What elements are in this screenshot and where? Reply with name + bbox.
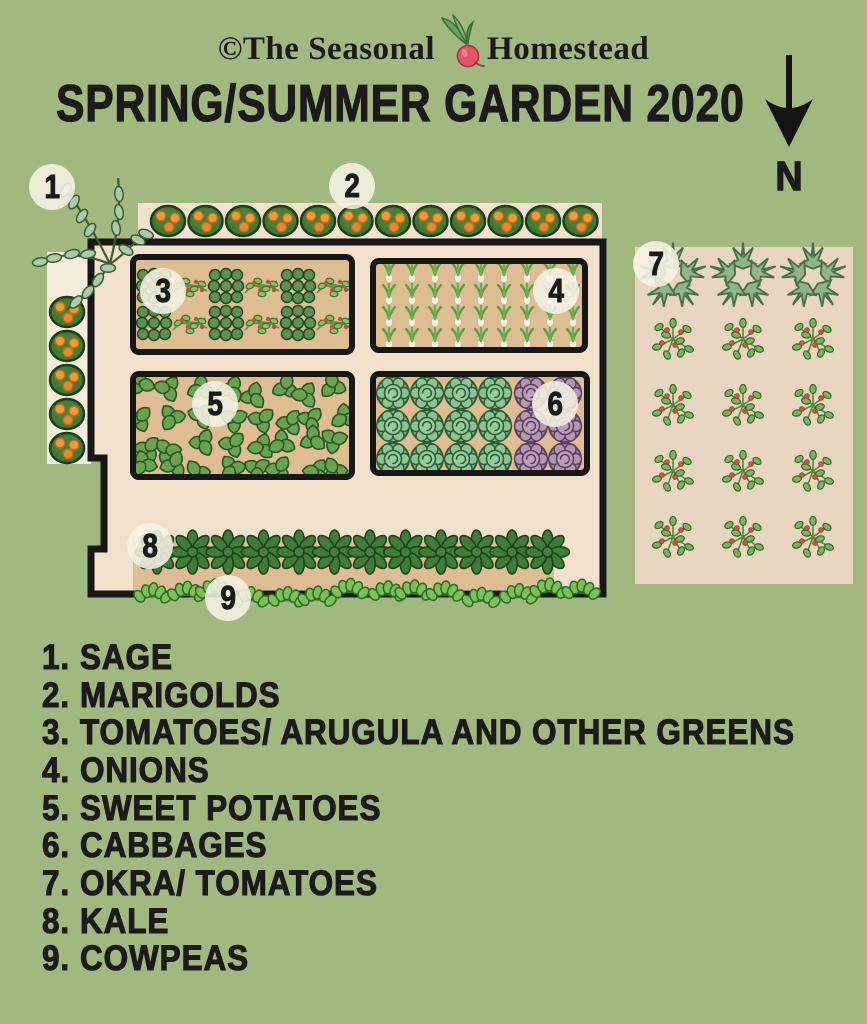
plant-marigold [339, 206, 373, 236]
plot-marker-number: 7 [648, 245, 664, 283]
legend-item-label: CABBAGES [80, 826, 267, 866]
planting-marigold [50, 297, 84, 463]
plant-marigold [489, 206, 523, 236]
plant-marigold [264, 206, 298, 236]
legend-item-1: 1.SAGE [42, 639, 795, 677]
plot-marker-number: 3 [155, 272, 171, 310]
plant-marigold [151, 206, 185, 236]
legend-item-label: SWEET POTATOES [80, 789, 381, 829]
plant-marigold [189, 206, 223, 236]
legend-item-label: TOMATOES/ ARUGULA AND OTHER GREENS [80, 713, 795, 753]
plant-marigold [451, 206, 485, 236]
legend-item-label: SAGE [80, 638, 173, 678]
radish-icon [438, 14, 486, 72]
plant-marigold [414, 206, 448, 236]
plant-cabg [377, 410, 410, 442]
legend-item-label: OKRA/ TOMATOES [80, 864, 378, 904]
plant-cabg [445, 377, 478, 409]
plant-kale [526, 530, 570, 574]
legend-item-number: 8. [42, 902, 70, 942]
legend-item-9: 9.COWPEAS [42, 941, 795, 979]
legend-item-number: 4. [42, 751, 70, 791]
plot-marker-2: 2 [329, 163, 375, 209]
legend-item-label: ONIONS [80, 751, 210, 791]
plant-marigold [526, 206, 560, 236]
plant-marigold [301, 206, 335, 236]
plot-marker-4: 4 [533, 268, 579, 314]
brand-suffix: Homestead [487, 31, 649, 68]
legend-item-5: 5.SWEET POTATOES [42, 790, 795, 828]
north-indicator: N [757, 55, 821, 200]
plot-marker-number: 8 [142, 527, 158, 565]
legend-item-6: 6.CABBAGES [42, 827, 795, 865]
plant-marigold [50, 365, 84, 395]
legend-item-number: 6. [42, 826, 70, 866]
legend-item-label: KALE [80, 902, 169, 942]
plant-cabg [479, 377, 512, 409]
legend-item-2: 2.MARIGOLDS [42, 677, 795, 715]
plot-marker-number: 2 [344, 167, 360, 205]
plant-greens [281, 306, 316, 341]
plant-cabg [411, 377, 444, 409]
plant-marigold [50, 331, 84, 361]
plant-marigold [50, 399, 84, 429]
plot-marker-1: 1 [29, 164, 75, 210]
plant-greens [209, 306, 244, 341]
brand-prefix: ©The Seasonal [218, 31, 435, 68]
legend-item-number: 2. [42, 676, 70, 716]
plant-marigold [376, 206, 410, 236]
legend-item-8: 8.KALE [42, 903, 795, 941]
plant-marigold [564, 206, 598, 236]
plant-greens [209, 269, 244, 304]
legend: 1.SAGE2.MARIGOLDS3.TOMATOES/ ARUGULA AND… [42, 639, 867, 978]
legend-item-number: 9. [42, 939, 70, 979]
plot-marker-3: 3 [140, 268, 186, 314]
plot-marker-number: 1 [44, 168, 60, 206]
page-title: SPRING/SUMMER GARDEN 2020 [56, 74, 745, 134]
plant-cabg [377, 377, 410, 409]
plot-marker-9: 9 [205, 575, 251, 621]
plot-marker-6: 6 [532, 381, 578, 427]
plot-marker-number: 6 [547, 385, 563, 423]
legend-item-label: MARIGOLDS [80, 676, 281, 716]
north-arrow-icon [759, 55, 819, 150]
plant-marigold [50, 433, 84, 463]
plant-marigold [226, 206, 260, 236]
plant-greens [281, 269, 316, 304]
plot-marker-8: 8 [127, 523, 173, 569]
garden-infographic: ©The Seasonal Homestead SPRING/SUMMER GA… [0, 0, 867, 1024]
legend-item-number: 5. [42, 789, 70, 829]
plant-cabg [479, 410, 512, 442]
plot-marker-5: 5 [192, 381, 238, 427]
plot-marker-7: 7 [633, 241, 679, 287]
north-label: N [760, 153, 819, 200]
brand-line: ©The Seasonal Homestead [0, 14, 867, 68]
legend-item-7: 7.OKRA/ TOMATOES [42, 865, 795, 903]
legend-item-number: 1. [42, 638, 70, 678]
plant-cabg [411, 410, 444, 442]
legend-item-3: 3.TOMATOES/ ARUGULA AND OTHER GREENS [42, 714, 795, 752]
plant-cabg [445, 410, 478, 442]
planting-cabg [377, 377, 512, 475]
plot-marker-number: 9 [220, 579, 236, 617]
plot-marker-number: 4 [548, 272, 564, 310]
legend-item-4: 4.ONIONS [42, 752, 795, 790]
plot-marker-number: 5 [207, 385, 223, 423]
legend-item-number: 3. [42, 713, 70, 753]
legend-item-label: COWPEAS [80, 939, 249, 979]
legend-item-number: 7. [42, 864, 70, 904]
